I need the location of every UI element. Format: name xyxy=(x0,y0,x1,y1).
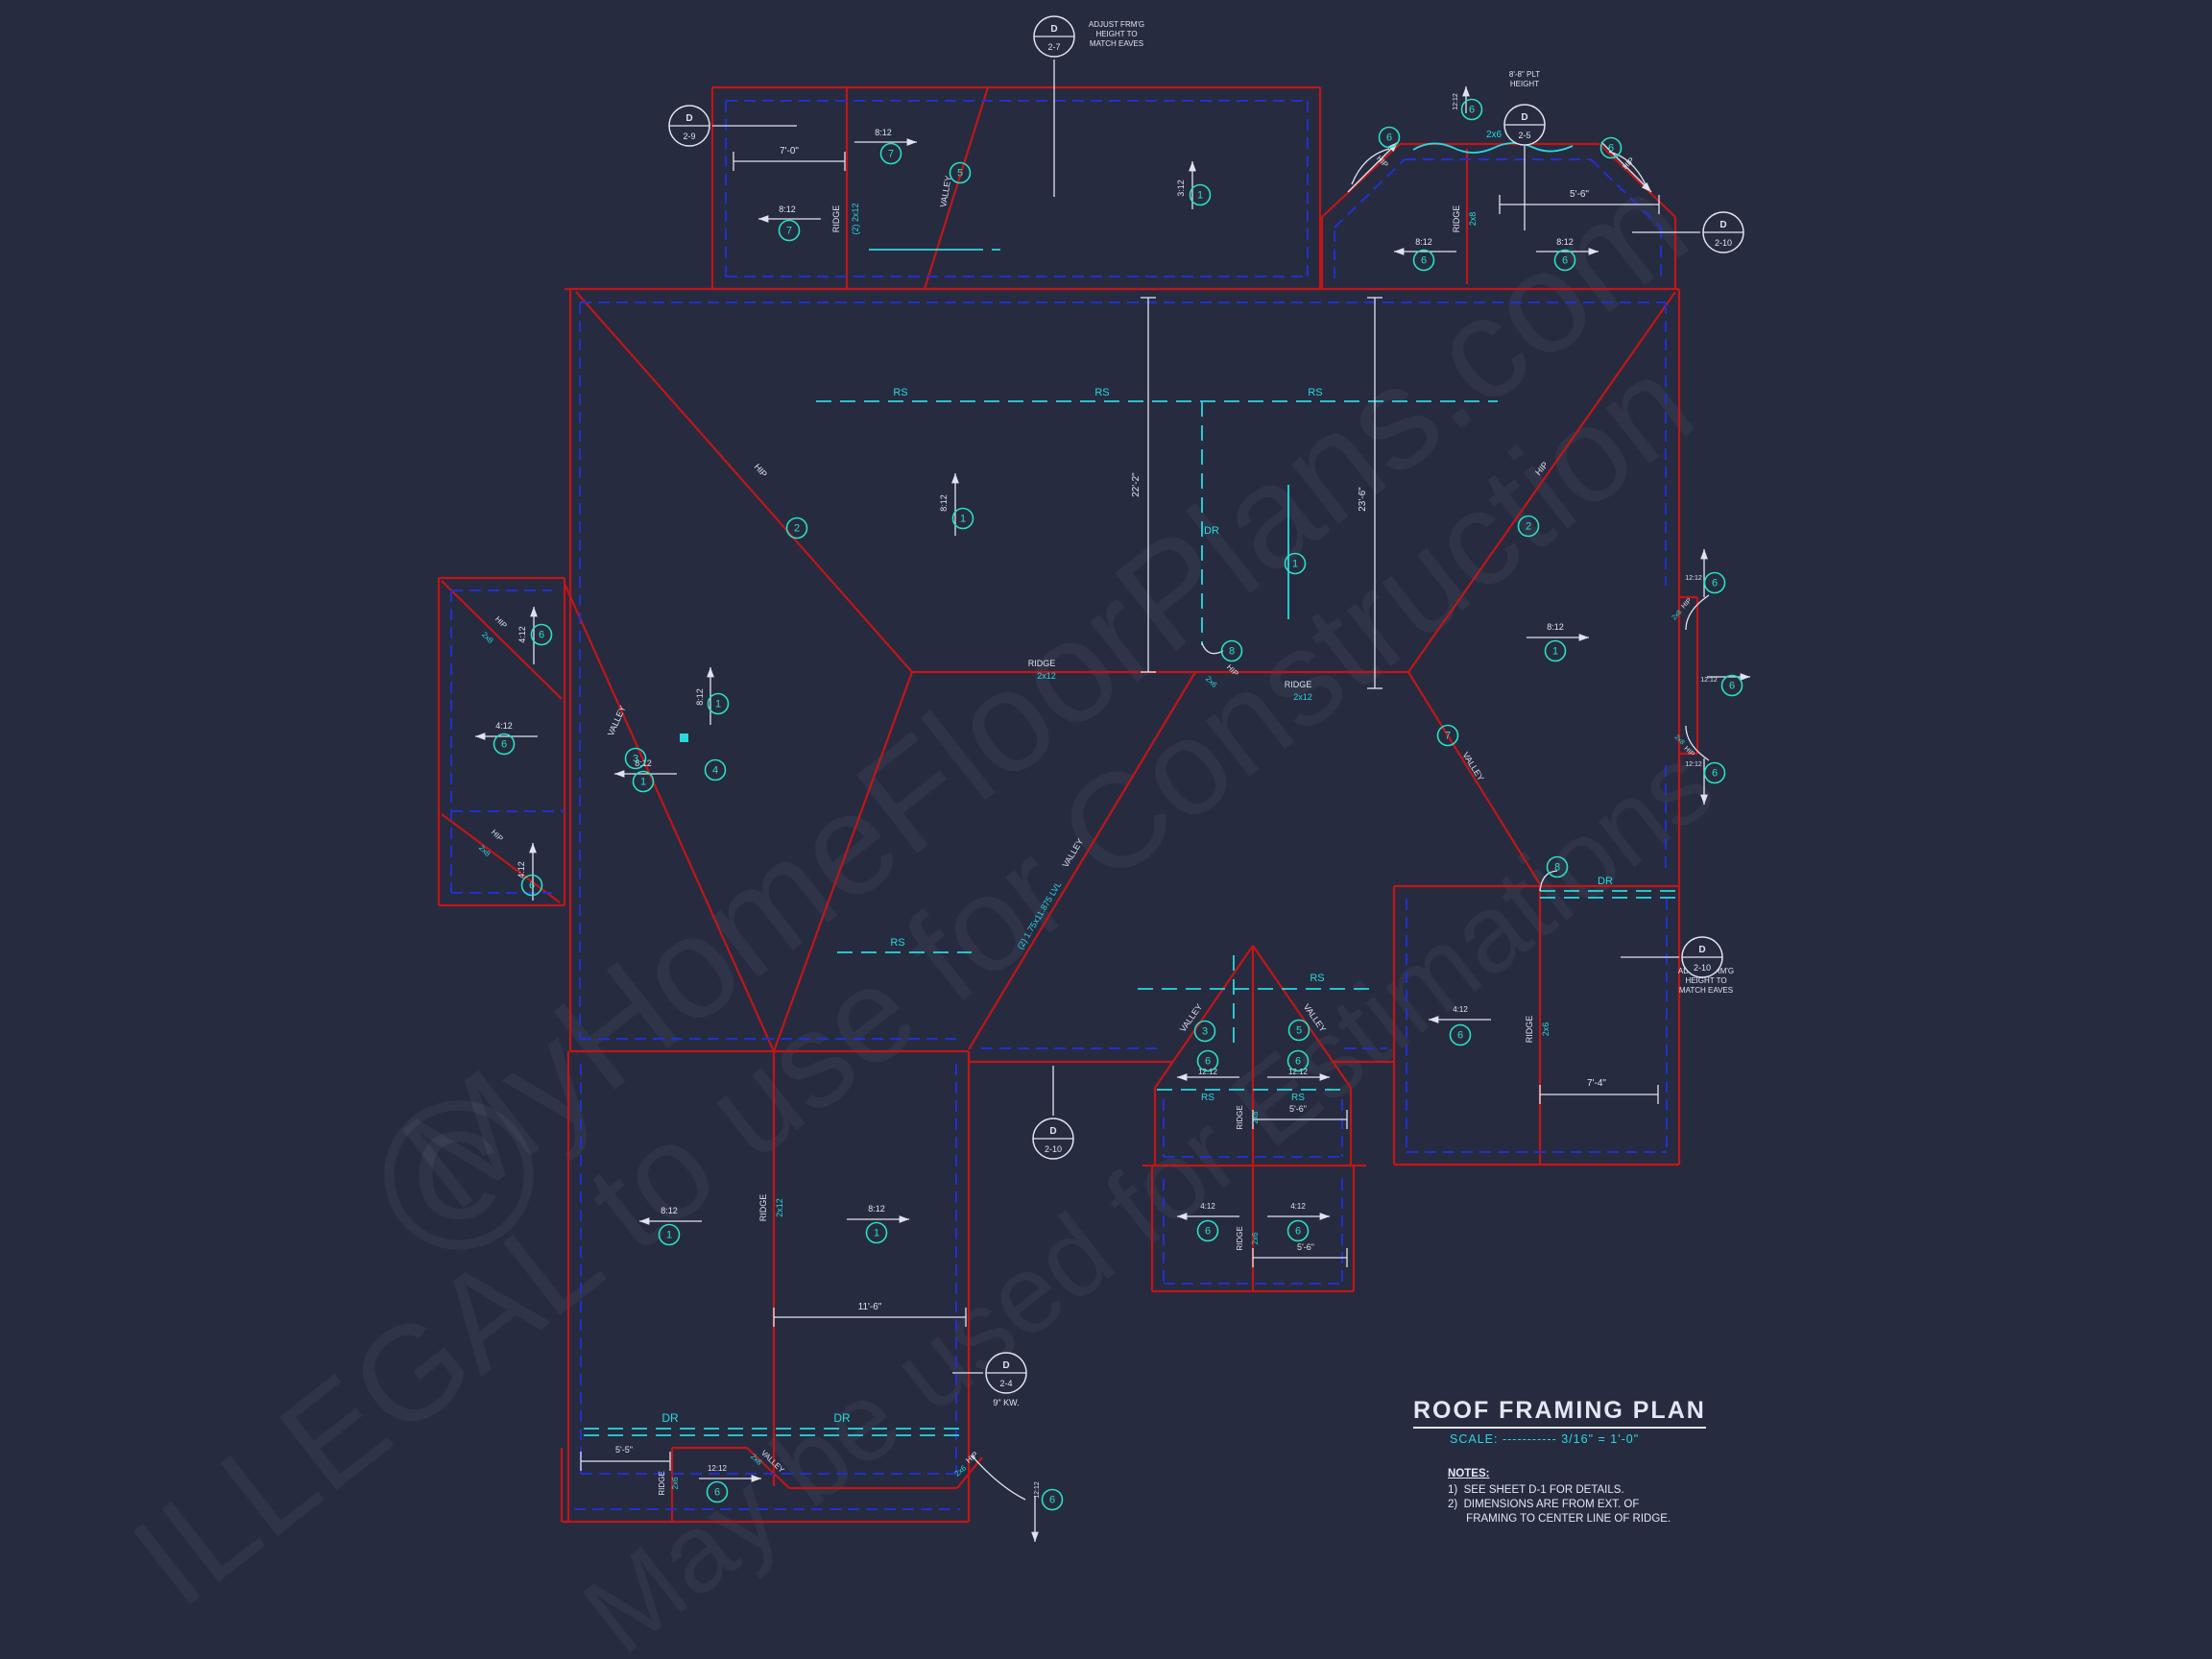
cad-label: 4:12 xyxy=(495,721,513,731)
keynote-number: 1 xyxy=(666,1230,672,1241)
detail-number: 2-5 xyxy=(1518,131,1530,140)
cad-label: RS xyxy=(893,387,907,398)
keynote-number: 8 xyxy=(1229,646,1235,658)
cad-label: 8:12 xyxy=(875,128,892,137)
notes-title: NOTES: xyxy=(1448,1467,1489,1481)
cad-label: 9" KW. xyxy=(993,1398,1019,1407)
cad-label: HEIGHT TO xyxy=(1095,30,1137,38)
cad-label: 8:12 xyxy=(939,494,949,512)
cad-label: VALLEY xyxy=(1178,1002,1204,1034)
cad-label: 12:12 xyxy=(1685,575,1702,582)
detail-number: 2-10 xyxy=(1715,238,1732,248)
detail-number: 2-10 xyxy=(1694,963,1711,973)
cad-label: 12:12 xyxy=(1685,761,1702,768)
cad-label: HIP xyxy=(1680,597,1693,610)
cad-label: 5'-5" xyxy=(615,1445,633,1455)
detail-sheet-letter: D xyxy=(1521,112,1527,123)
keynote-number: 4 xyxy=(712,765,718,777)
cad-label: 8:12 xyxy=(868,1204,885,1214)
cad-label: 8:12 xyxy=(695,688,705,706)
keynote-number: 6 xyxy=(1295,1056,1301,1068)
cad-label: 11'-6" xyxy=(858,1302,882,1312)
detail-number: 2-9 xyxy=(683,132,695,141)
cad-label: VALLEY xyxy=(606,705,628,738)
keynote-number: 1 xyxy=(715,699,721,710)
keynote-number: 6 xyxy=(501,739,507,751)
keynote-number: 5 xyxy=(1296,1025,1302,1037)
roof-outline-line xyxy=(576,292,912,672)
cad-label: (2) 2x12 xyxy=(851,203,860,234)
cad-label: 12:12 xyxy=(1453,93,1459,110)
cad-label: 8'-8" PLT xyxy=(1509,70,1540,79)
cad-label: 8:12 xyxy=(779,204,796,214)
cad-label: 4:12 xyxy=(517,626,527,643)
cad-label: 12:12 xyxy=(708,1464,728,1473)
keynote-number: 8 xyxy=(1554,862,1560,874)
cad-label: RS xyxy=(1094,387,1109,398)
cad-label: 7'-4" xyxy=(1587,1078,1606,1089)
cad-label: DR xyxy=(833,1411,851,1425)
detail-number: 2-7 xyxy=(1047,42,1060,52)
notes-block: NOTES: 1) SEE SHEET D-1 FOR DETAILS. 2) … xyxy=(1448,1467,1671,1527)
cad-label: ADJUST FRM'G xyxy=(1089,20,1144,29)
note-line-3: FRAMING TO CENTER LINE OF RIDGE. xyxy=(1448,1512,1671,1527)
cad-label: 2x12 xyxy=(1293,692,1312,702)
keynote-number: 1 xyxy=(1197,190,1203,202)
cad-label: 8:12 xyxy=(1547,622,1564,632)
cad-label: 5'-6" xyxy=(1289,1104,1307,1114)
keynote-number: 6 xyxy=(539,630,544,641)
roof-framing-plan-sheet: { "title_block": { "title": "ROOF FRAMIN… xyxy=(0,0,2212,1659)
keynote-number: 6 xyxy=(1469,105,1475,116)
detail-sheet-letter: D xyxy=(1002,1360,1009,1371)
keynote-number: 6 xyxy=(1205,1056,1211,1068)
cad-label: 4:12 xyxy=(1453,1005,1468,1014)
cad-label: RIDGE xyxy=(831,205,841,233)
title-block: ROOF FRAMING PLAN SCALE: ----------- 3/1… xyxy=(1413,1397,1759,1446)
keynote-number: 6 xyxy=(1049,1495,1055,1506)
keynote-number: 6 xyxy=(714,1487,720,1499)
cad-label: 8:12 xyxy=(1556,237,1574,247)
cad-label: 8:12 xyxy=(1415,237,1432,247)
scale-label: SCALE: xyxy=(1450,1432,1498,1446)
cad-label: 2x8 xyxy=(477,843,493,858)
valley-marker-square xyxy=(680,733,688,742)
keynote-number: 6 xyxy=(1729,681,1735,692)
cad-label: DR xyxy=(1204,525,1219,537)
keynote-number: 6 xyxy=(1712,768,1718,780)
scale-value: 3/16" = 1'-0" xyxy=(1561,1432,1639,1446)
cad-label: RIDGE xyxy=(1236,1226,1244,1250)
cad-label: HIP xyxy=(493,614,509,630)
keynote-number: 1 xyxy=(874,1228,879,1239)
plan-title: ROOF FRAMING PLAN xyxy=(1413,1397,1706,1429)
keynote-number: 7 xyxy=(1445,731,1451,742)
cad-label: 2x8 xyxy=(1251,1111,1260,1123)
cad-label: RIDGE xyxy=(1452,205,1461,233)
cad-label: 2x6 xyxy=(1486,130,1503,140)
cad-label: 2x6 xyxy=(1251,1232,1260,1244)
cad-label: 22'-2" xyxy=(1131,472,1142,497)
keynote-number: 6 xyxy=(529,880,535,892)
cad-label: DR xyxy=(1598,876,1613,887)
cad-label: HIP xyxy=(490,828,505,843)
cad-label: 4:12 xyxy=(1200,1202,1215,1211)
cad-label: 2x12 xyxy=(775,1198,784,1217)
roof-outline-line xyxy=(1322,144,1400,217)
cad-label: HEIGHT xyxy=(1510,80,1539,88)
slope-arrow xyxy=(1348,142,1398,192)
scale-dashes: ----------- xyxy=(1503,1432,1557,1446)
cad-label: 5'-6" xyxy=(1570,189,1589,200)
cad-label: RS xyxy=(1308,387,1322,398)
detail-number: 2-4 xyxy=(999,1379,1012,1388)
detail-number: 2-10 xyxy=(1045,1144,1062,1154)
keynote-number: 6 xyxy=(1457,1030,1463,1042)
cad-label: RIDGE xyxy=(1525,1016,1534,1044)
watermark-text: © xyxy=(381,1057,537,1293)
cad-label: 23'-6" xyxy=(1358,487,1368,512)
keynote-number: 6 xyxy=(1608,143,1614,155)
cad-label: HIP xyxy=(753,462,769,479)
keynote-number: 1 xyxy=(960,514,966,525)
keynote-number: 6 xyxy=(1712,578,1718,589)
cad-label: 8:12 xyxy=(661,1206,678,1215)
cad-label: RIDGE xyxy=(1028,659,1056,668)
roof-outline-line xyxy=(1408,672,1540,884)
cad-label: 3:12 xyxy=(1176,180,1186,197)
cad-label: RS xyxy=(1201,1093,1214,1103)
cad-label: MATCH EAVES xyxy=(1090,39,1143,48)
keynote-number: 6 xyxy=(1562,255,1568,267)
cad-label: 5'-6" xyxy=(1297,1242,1314,1252)
note-line-2: 2) DIMENSIONS ARE FROM EXT. OF xyxy=(1448,1498,1671,1512)
cad-label: 4:12 xyxy=(1290,1202,1306,1211)
keynote-number: 2 xyxy=(1526,521,1531,533)
detail-sheet-letter: D xyxy=(1050,24,1057,35)
cad-label: 2x6 xyxy=(671,1477,680,1489)
cad-label: 12:12 xyxy=(1034,1481,1041,1499)
cad-label: 2x8 xyxy=(1671,609,1683,621)
roof-outline-line xyxy=(442,814,560,902)
cad-label: RS xyxy=(1310,973,1324,984)
cad-label: DR xyxy=(661,1411,679,1425)
keynote-number: 6 xyxy=(1295,1226,1301,1238)
watermark-text: MyHomeFloorPlans.com xyxy=(373,141,1715,1238)
keynote-number: 6 xyxy=(1205,1226,1211,1238)
cad-label: RIDGE xyxy=(658,1471,666,1495)
cad-label: 2x8 xyxy=(1468,212,1478,227)
cad-label: RS xyxy=(1291,1093,1305,1103)
roof-framing-drawing: MyHomeFloorPlans.comILLEGAL to use for C… xyxy=(0,0,2212,1659)
keynote-number: 6 xyxy=(1421,255,1427,267)
keynote-number: 6 xyxy=(1386,132,1392,144)
cad-label: 7'-0" xyxy=(780,146,799,156)
cad-label: MATCH EAVES xyxy=(1679,986,1733,995)
detail-sheet-letter: D xyxy=(685,113,692,124)
cad-label: 12:12 xyxy=(1700,677,1718,684)
keynote-number: 3 xyxy=(1202,1026,1208,1038)
cad-label: RIDGE xyxy=(1285,680,1312,689)
keynote-number: 1 xyxy=(1292,559,1298,570)
detail-sheet-letter: D xyxy=(1719,220,1726,230)
keynote-number: 3 xyxy=(633,754,638,765)
note-line-1: 1) SEE SHEET D-1 FOR DETAILS. xyxy=(1448,1483,1671,1498)
keynote-number: 1 xyxy=(640,777,646,788)
detail-sheet-letter: D xyxy=(1698,945,1705,955)
cad-label: RIDGE xyxy=(758,1194,768,1222)
cad-label: RIDGE xyxy=(1236,1105,1244,1129)
keynote-number: 7 xyxy=(786,226,792,237)
roof-outline-line xyxy=(925,87,988,289)
keynote-number: 2 xyxy=(794,523,800,535)
detail-sheet-letter: D xyxy=(1049,1126,1056,1137)
cad-label: RS xyxy=(890,937,904,949)
keynote-number: 7 xyxy=(888,149,894,160)
cad-label: 2x12 xyxy=(1037,671,1056,681)
scale-line: SCALE: ----------- 3/16" = 1'-0" xyxy=(1450,1432,1759,1446)
cad-label: 4:12 xyxy=(517,861,526,878)
cad-label: 2x6 xyxy=(1541,1022,1551,1037)
keynote-number: 5 xyxy=(957,168,963,180)
keynote-number: 1 xyxy=(1552,646,1558,658)
